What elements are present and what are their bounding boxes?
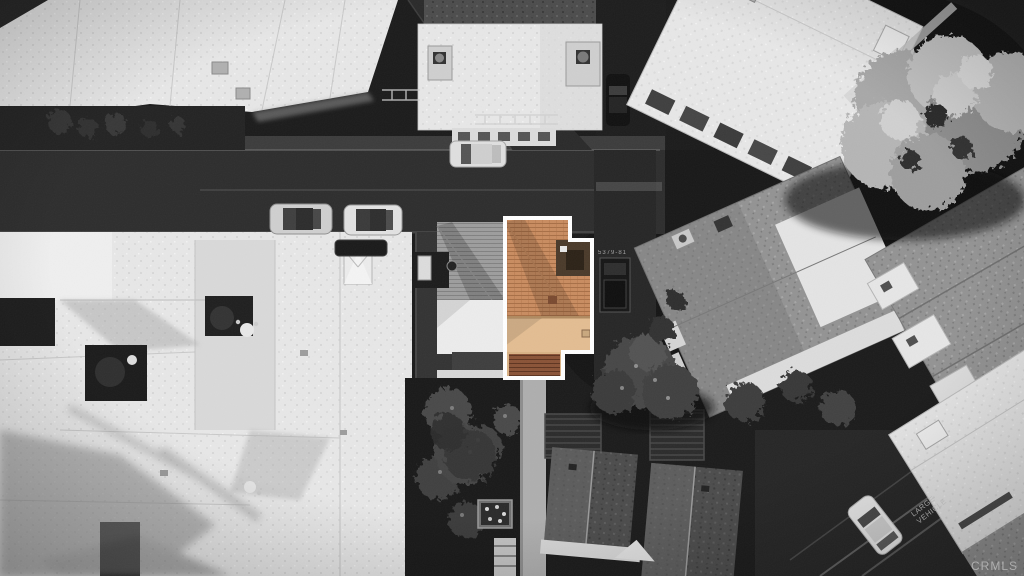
watermark-text: CRMLS bbox=[971, 559, 1018, 573]
grain-overlay bbox=[0, 0, 1024, 576]
aerial-photo: LARGE VEHICLE bbox=[0, 0, 1024, 576]
aerial-scene: LARGE VEHICLE bbox=[0, 0, 1024, 576]
